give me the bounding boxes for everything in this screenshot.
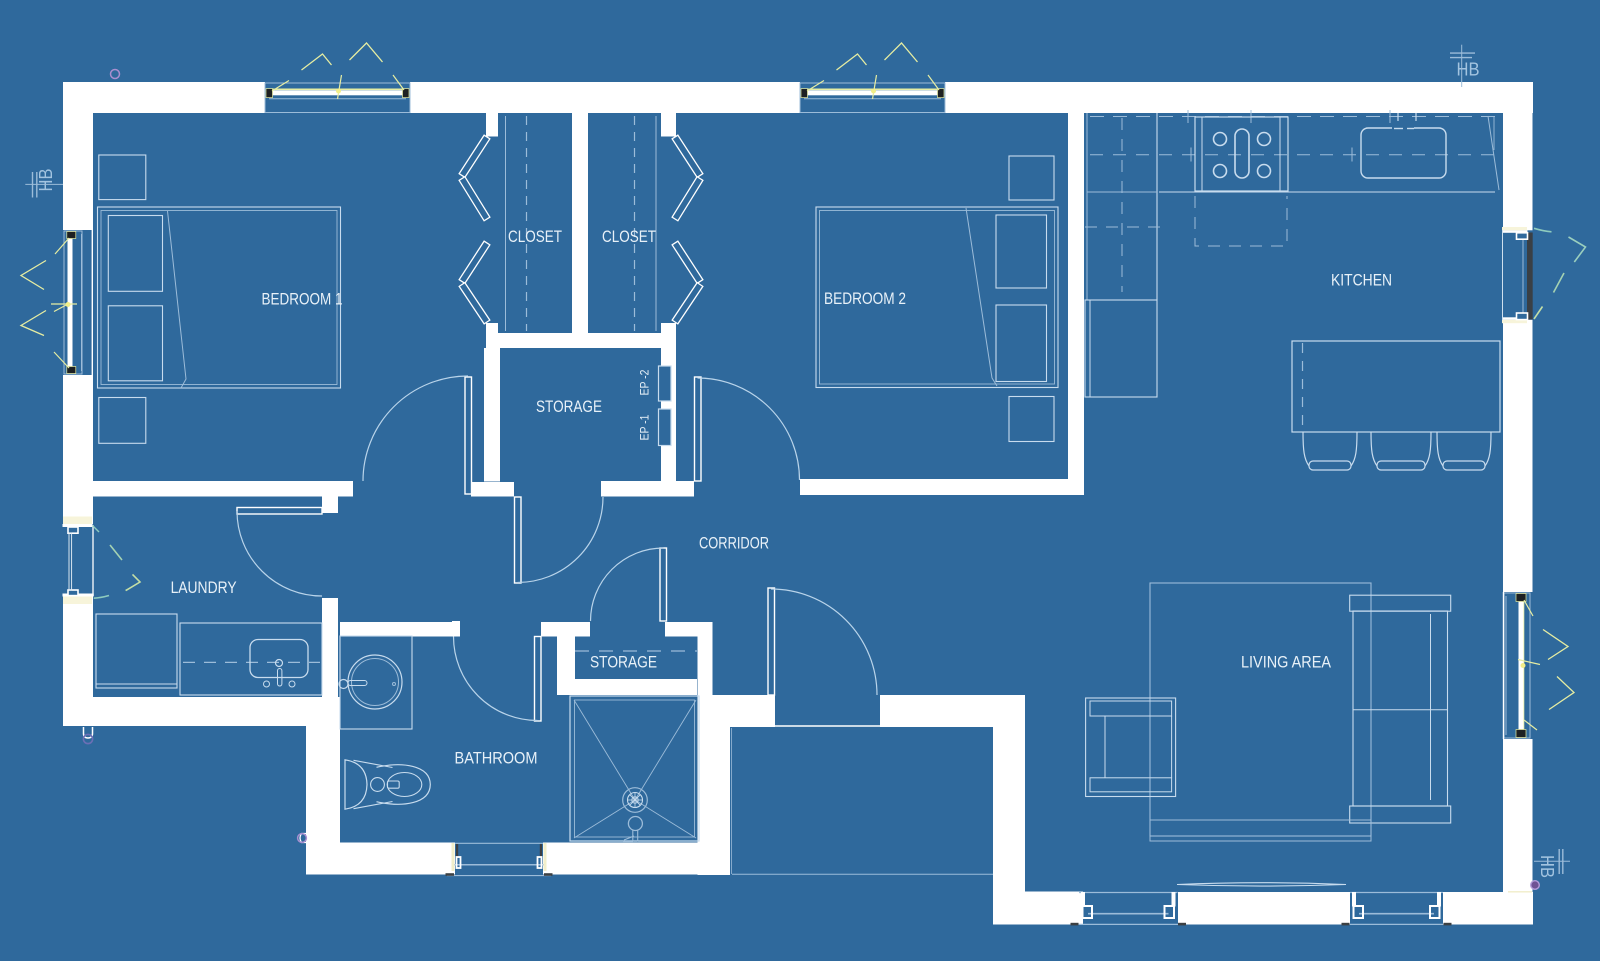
svg-text:CLOSET: CLOSET: [508, 228, 562, 246]
svg-text:CLOSET: CLOSET: [602, 228, 656, 246]
svg-text:HB: HB: [36, 169, 56, 192]
svg-text:BEDROOM 2: BEDROOM 2: [824, 290, 906, 308]
svg-text:BATHROOM: BATHROOM: [455, 750, 538, 768]
svg-text:CORRIDOR: CORRIDOR: [699, 535, 769, 553]
svg-text:BEDROOM 1: BEDROOM 1: [262, 291, 343, 309]
svg-text:EP -1: EP -1: [640, 415, 652, 441]
svg-text:STORAGE: STORAGE: [590, 653, 657, 671]
svg-text:LIVING AREA: LIVING AREA: [1241, 654, 1331, 672]
svg-text:HB: HB: [1537, 855, 1557, 878]
svg-text:HB: HB: [1457, 60, 1480, 80]
svg-text:LAUNDRY: LAUNDRY: [171, 579, 237, 597]
svg-text:KITCHEN: KITCHEN: [1331, 272, 1392, 290]
svg-text:STORAGE: STORAGE: [536, 398, 602, 416]
svg-text:EP -2: EP -2: [640, 370, 652, 396]
